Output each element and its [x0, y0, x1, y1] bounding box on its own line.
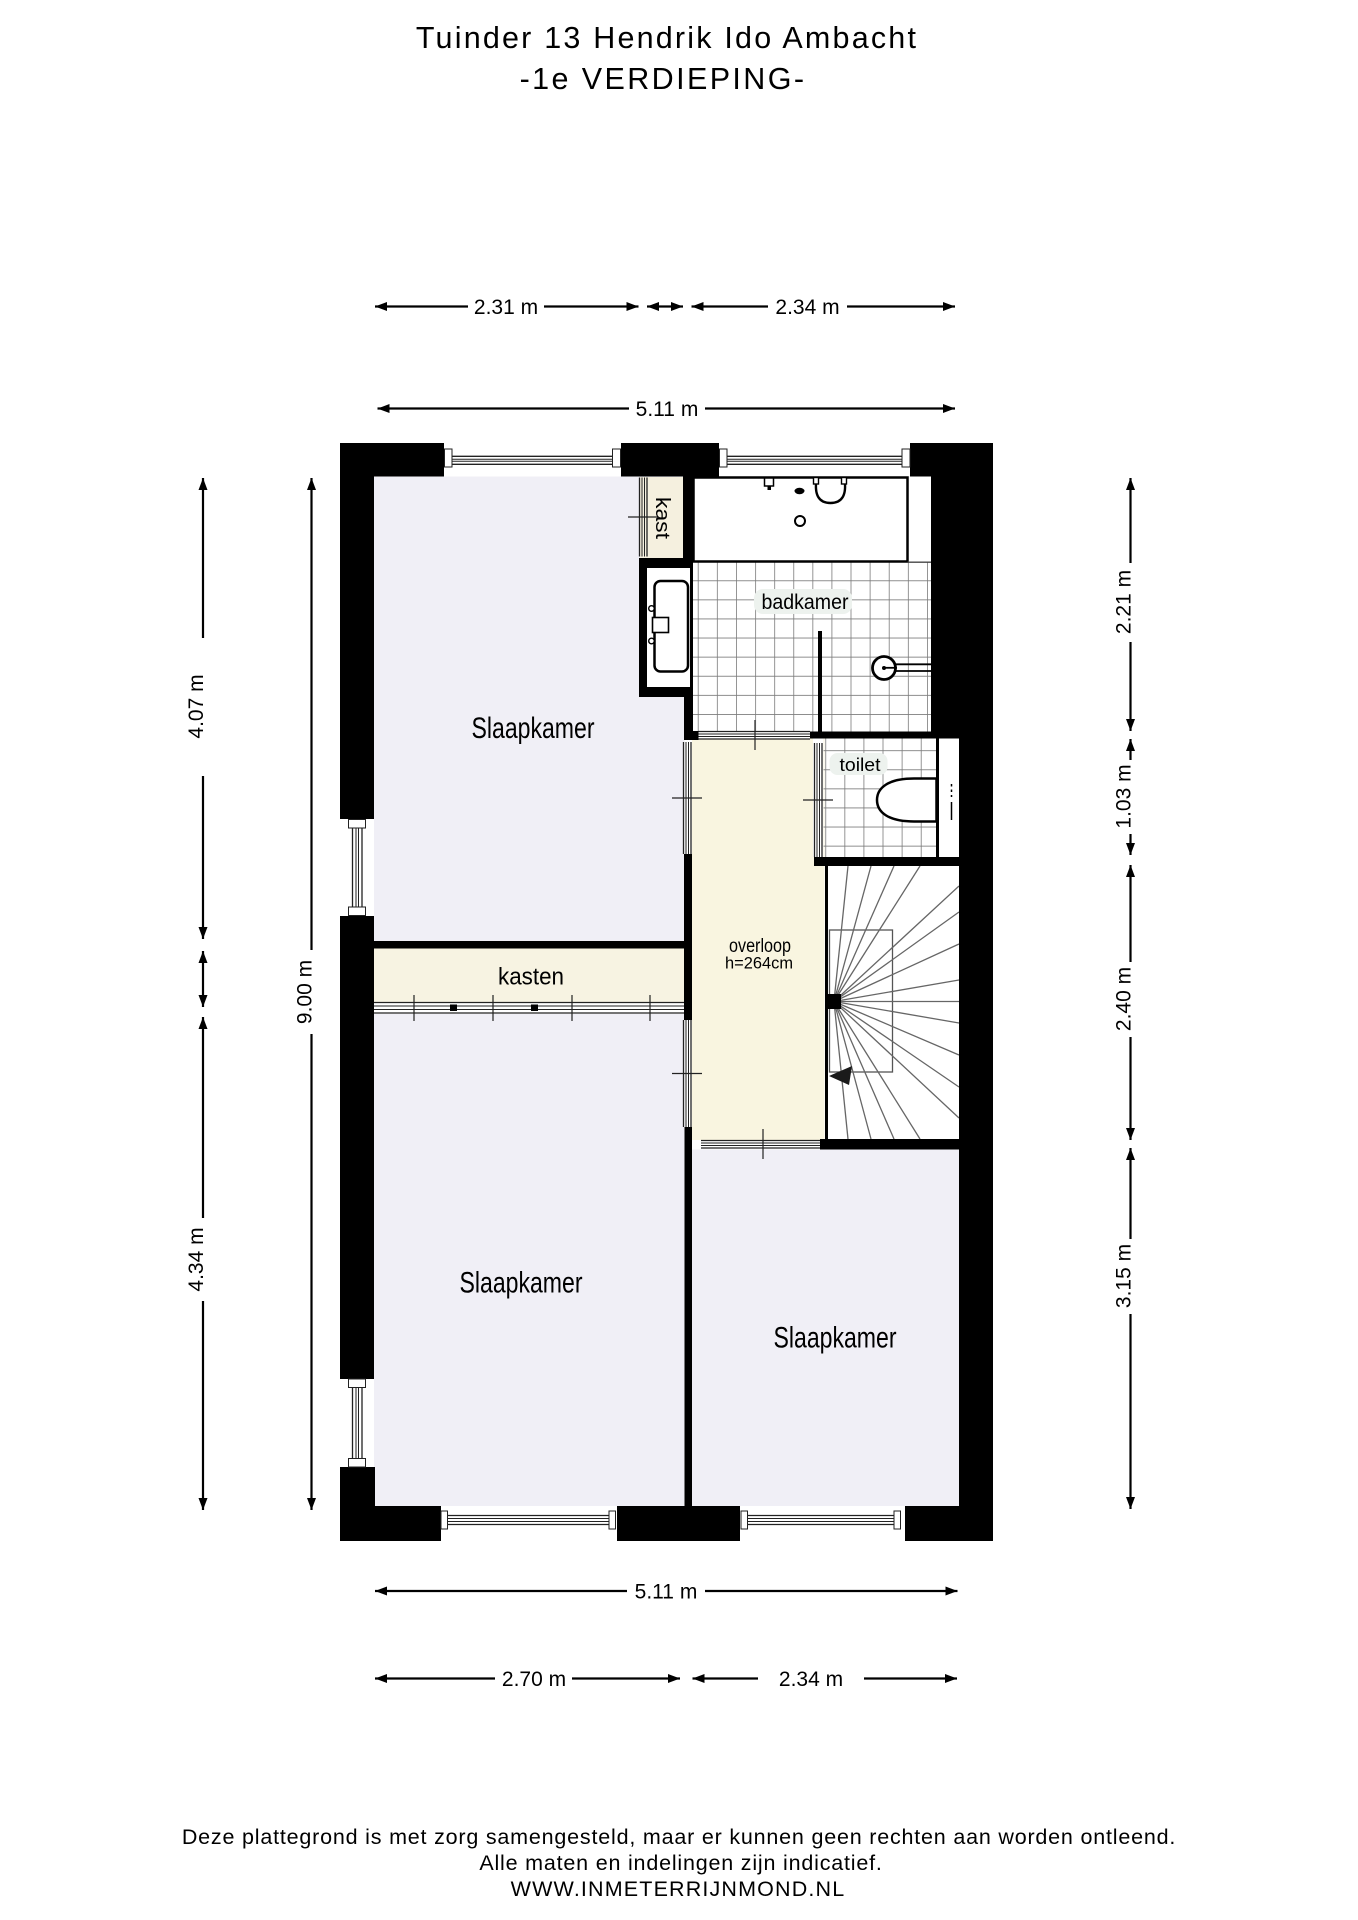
svg-text:4.34 m: 4.34 m: [185, 1227, 208, 1291]
svg-text:Tuinder 13 Hendrik Ido Ambacht: Tuinder 13 Hendrik Ido Ambacht: [416, 21, 918, 55]
svg-text:1.03 m: 1.03 m: [1113, 764, 1136, 828]
svg-text:toilet: toilet: [840, 754, 881, 775]
svg-text:Deze plattegrond is met zorg s: Deze plattegrond is met zorg samengestel…: [182, 1825, 1176, 1849]
svg-text:kast: kast: [651, 497, 673, 539]
svg-text:9.00 m: 9.00 m: [294, 960, 317, 1024]
svg-text:badkamer: badkamer: [762, 591, 849, 614]
svg-text:2.31 m: 2.31 m: [474, 296, 538, 319]
svg-text:2.40 m: 2.40 m: [1113, 967, 1136, 1031]
svg-text:h=264cm: h=264cm: [725, 955, 793, 973]
svg-text:4.07 m: 4.07 m: [185, 674, 208, 738]
svg-text:Alle maten en indelingen zijn: Alle maten en indelingen zijn indicatief…: [479, 1851, 882, 1875]
svg-text:2.34 m: 2.34 m: [775, 296, 839, 319]
svg-text:5.11 m: 5.11 m: [635, 1581, 698, 1604]
svg-text:5.11 m: 5.11 m: [636, 398, 699, 421]
svg-text:WWW.INMETERRIJNMOND.NL: WWW.INMETERRIJNMOND.NL: [511, 1877, 846, 1901]
svg-text:3.15 m: 3.15 m: [1113, 1244, 1136, 1308]
svg-text:2.21 m: 2.21 m: [1113, 570, 1136, 634]
svg-text:Slaapkamer: Slaapkamer: [460, 1267, 583, 1300]
svg-text:kasten: kasten: [498, 964, 564, 991]
svg-text:2.70 m: 2.70 m: [502, 1668, 566, 1691]
svg-text:Slaapkamer: Slaapkamer: [472, 712, 595, 745]
svg-text:-1e VERDIEPING-: -1e VERDIEPING-: [520, 62, 807, 96]
svg-text:Slaapkamer: Slaapkamer: [774, 1322, 897, 1355]
svg-text:2.34 m: 2.34 m: [779, 1668, 843, 1691]
